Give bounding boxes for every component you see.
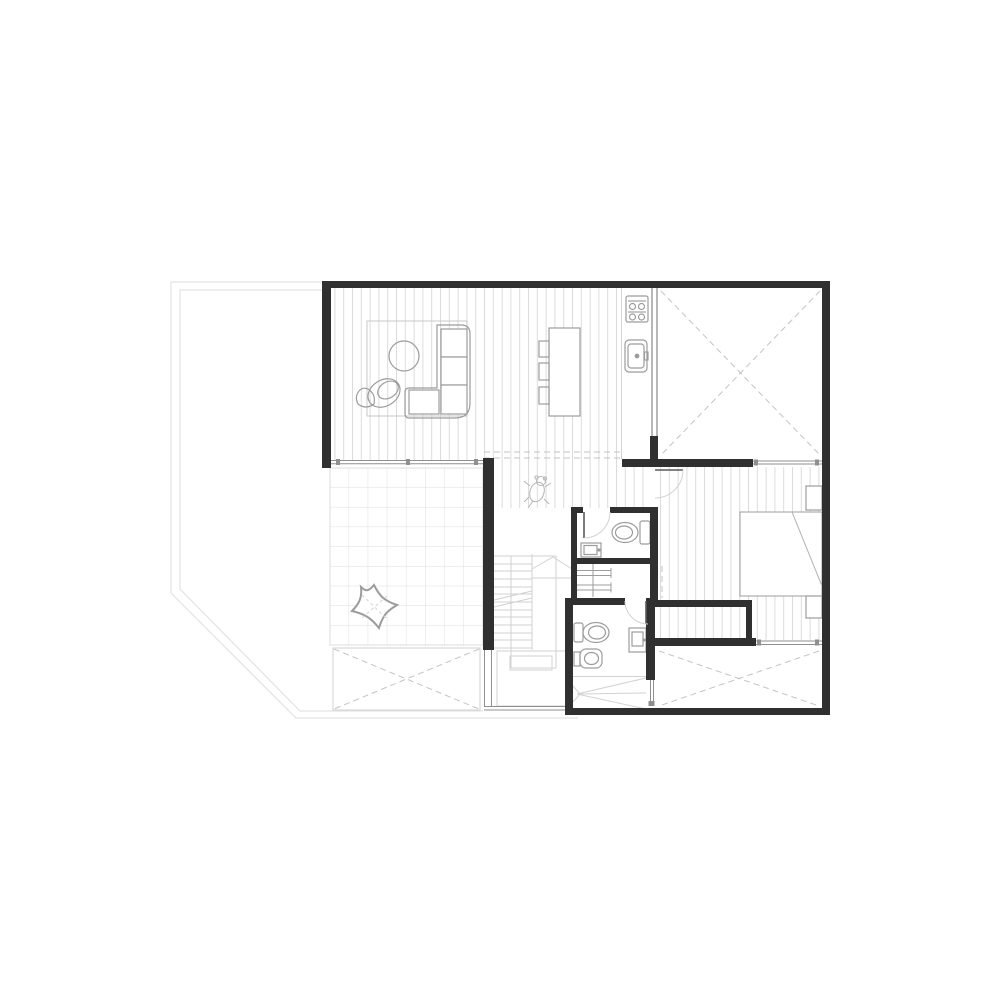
stair-void-below [497, 651, 569, 706]
deck-bottom-right [659, 651, 819, 706]
kitchen [622, 288, 649, 459]
hallway-floor [494, 460, 650, 508]
washbasin [581, 543, 601, 557]
stairs [494, 554, 572, 706]
kitchen-sink [625, 340, 648, 372]
floor-plan-canvas [0, 0, 1000, 1000]
vanity-sink [629, 628, 646, 652]
garage-cross [661, 291, 820, 455]
dining-table [549, 328, 580, 416]
stair-void-window [484, 707, 571, 711]
wall-stub [650, 436, 658, 459]
ubath-wall-bottom [571, 558, 658, 564]
wall-north [322, 281, 830, 288]
closet-wall-left [571, 558, 577, 604]
stair-break-line [494, 591, 532, 600]
upper-bathroom-door [584, 512, 610, 538]
wall-east [822, 281, 830, 715]
toilet [612, 521, 650, 544]
stair-direction-arrow [532, 557, 572, 569]
wall-bedroom-north [622, 459, 753, 467]
bidet [574, 649, 602, 668]
toilet [574, 623, 609, 643]
wall-west [322, 281, 331, 468]
lbath-wall-top [565, 598, 625, 605]
nightstand [806, 486, 822, 510]
upper-bathroom-fixtures [581, 521, 650, 557]
floor-plan-drawing [0, 0, 1000, 1000]
wall-central [483, 458, 494, 650]
linen-closet-shelving [575, 564, 611, 597]
double-bed [740, 512, 822, 596]
lower-bathroom-fixtures [573, 623, 646, 710]
lower-bathroom-door [625, 601, 648, 624]
bedroom-north-window [753, 460, 822, 466]
wardrobe-wall-top [650, 600, 752, 607]
terrace-tiles [330, 468, 483, 645]
wardrobe-wall-cap [746, 600, 752, 646]
bedroom-south-window [756, 640, 822, 646]
ubath-wall-left [571, 507, 577, 564]
ubath-wall-right [650, 507, 658, 604]
shower [573, 677, 646, 710]
nightstand [806, 596, 822, 618]
wall-south [565, 708, 830, 715]
deck-bottom-left [333, 648, 480, 710]
bedroom-wall-south [650, 638, 756, 646]
cooktop [626, 296, 648, 322]
ubath-wall-top [571, 507, 583, 513]
lbath-wall-left [565, 598, 573, 715]
